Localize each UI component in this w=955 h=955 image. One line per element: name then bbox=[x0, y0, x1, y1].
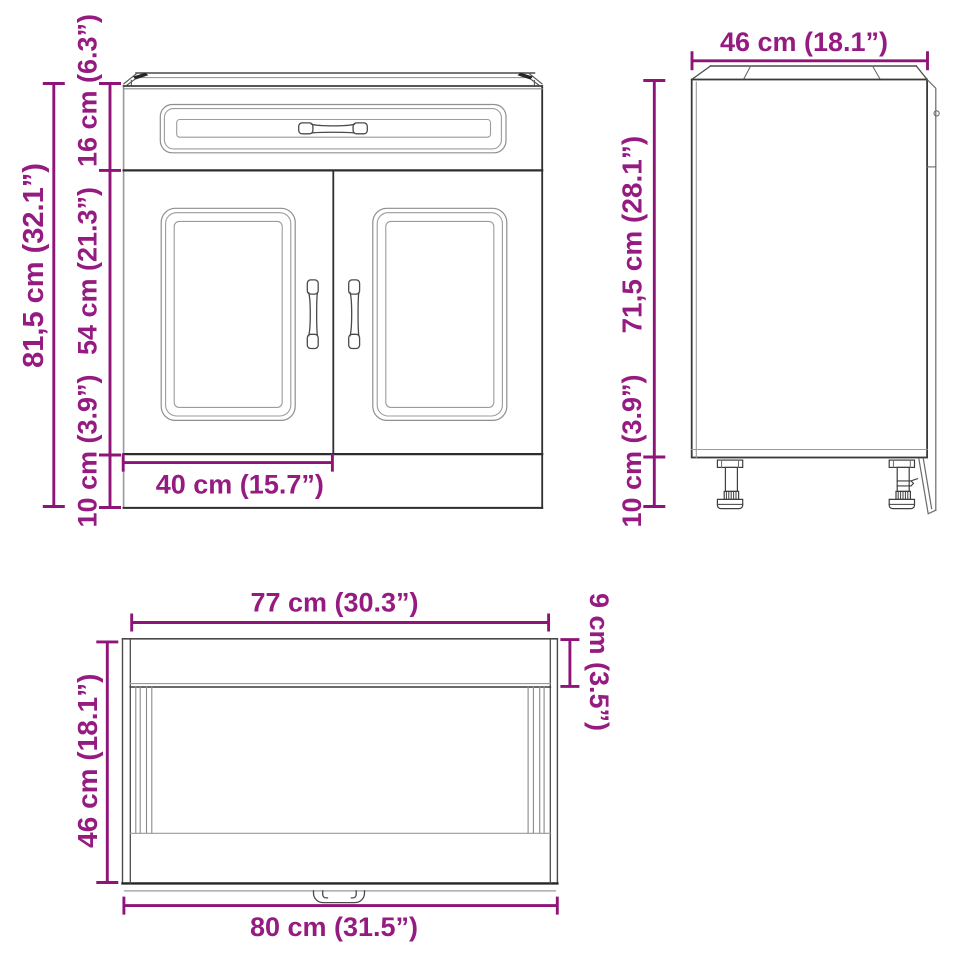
svg-text:46 cm (18.1”): 46 cm (18.1”) bbox=[72, 674, 103, 848]
svg-text:16 cm (6.3”): 16 cm (6.3”) bbox=[73, 14, 103, 167]
svg-text:10 cm (3.9”): 10 cm (3.9”) bbox=[73, 374, 103, 527]
svg-text:81,5 cm (32.1”): 81,5 cm (32.1”) bbox=[18, 163, 50, 368]
svg-text:71,5 cm (28.1”): 71,5 cm (28.1”) bbox=[617, 136, 648, 334]
svg-text:77 cm (30.3”): 77 cm (30.3”) bbox=[250, 587, 418, 617]
svg-text:40 cm (15.7”): 40 cm (15.7”) bbox=[156, 470, 324, 500]
svg-text:46 cm (18.1”): 46 cm (18.1”) bbox=[720, 27, 888, 57]
svg-text:10 cm (3.9”): 10 cm (3.9”) bbox=[617, 374, 647, 527]
svg-text:9 cm (3.5”): 9 cm (3.5”) bbox=[584, 593, 614, 731]
svg-text:80 cm (31.5”): 80 cm (31.5”) bbox=[250, 912, 418, 942]
svg-text:54 cm (21.3”): 54 cm (21.3”) bbox=[73, 187, 103, 355]
